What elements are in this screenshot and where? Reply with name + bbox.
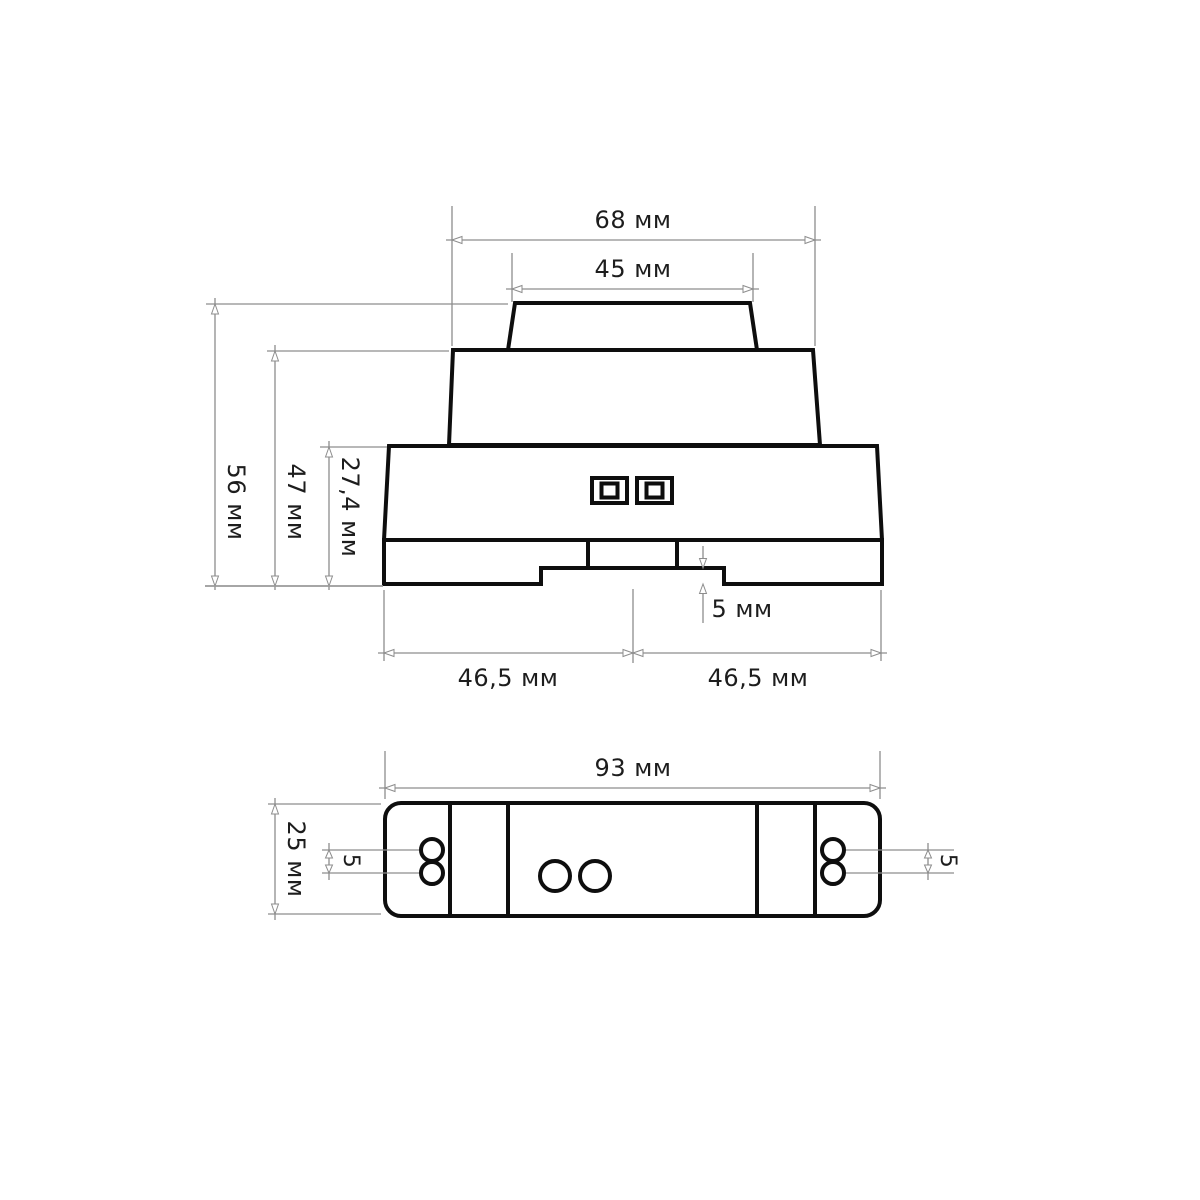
bottom-view: 93 мм 25 мм 5 5 xyxy=(268,751,960,920)
dim-upper-height-label: 47 мм xyxy=(282,464,310,541)
arrowhead-left xyxy=(512,286,522,293)
arrowhead-top xyxy=(925,850,932,858)
arrowhead-bottom xyxy=(925,865,932,873)
dim-base-halves: 46,5 мм 46,5 мм xyxy=(378,589,887,692)
arrowhead-top xyxy=(272,804,279,814)
arrowhead-left xyxy=(384,650,394,657)
terminal-hole-right-bottom xyxy=(822,862,844,884)
dim-cap-width-label: 45 мм xyxy=(595,255,672,283)
terminal-hole-right-top xyxy=(822,839,844,861)
dim-base-half-right-label: 46,5 мм xyxy=(708,664,809,692)
arrowhead-right xyxy=(870,785,880,792)
dim-overall-length-label: 93 мм xyxy=(595,754,672,782)
arrowhead-bottom xyxy=(272,576,279,586)
dim-overall-width-label: 68 мм xyxy=(595,206,672,234)
terminal-hole-left-top xyxy=(421,839,443,861)
front-cap-outline xyxy=(508,303,757,350)
bottom-outline xyxy=(385,803,880,916)
center-hole-right xyxy=(580,861,610,891)
arrowhead-bottom xyxy=(326,865,333,873)
dim-overall-depth: 25 мм xyxy=(268,798,381,920)
arrowhead-left xyxy=(452,237,462,244)
arrowhead-center-right xyxy=(633,650,643,657)
dim-rail-step-label: 5 мм xyxy=(711,595,772,623)
front-base-outline xyxy=(384,446,882,584)
front-switch-window-right xyxy=(637,478,672,503)
dim-terminal-pitch-left-label: 5 xyxy=(338,854,363,869)
arrowhead-left xyxy=(385,785,395,792)
terminal-hole-left-bottom xyxy=(421,862,443,884)
arrowhead-right xyxy=(871,650,881,657)
dim-base-half-left-label: 46,5 мм xyxy=(458,664,559,692)
front-upper-body-outline xyxy=(449,350,820,445)
arrowhead-right xyxy=(805,237,815,244)
dim-base-height-label: 27,4 мм xyxy=(336,457,364,558)
arrowhead-right xyxy=(743,286,753,293)
switch-window-inner xyxy=(602,484,618,498)
switch-window-inner xyxy=(647,484,663,498)
technical-drawing: 68 мм 45 мм 56 мм 47 мм xyxy=(0,0,1200,1200)
arrowhead-bottom xyxy=(326,576,333,586)
dim-overall-length: 93 мм xyxy=(379,751,886,799)
dim-terminal-pitch-left: 5 xyxy=(322,843,419,880)
arrowhead-bottom xyxy=(212,576,219,586)
dim-terminal-pitch-right: 5 xyxy=(846,843,960,880)
arrowhead-top xyxy=(326,850,333,858)
dim-terminal-pitch-right-label: 5 xyxy=(935,854,960,869)
dim-base-height: 27,4 мм xyxy=(320,441,387,590)
arrowhead-up xyxy=(700,584,707,594)
arrowhead-top xyxy=(326,447,333,457)
dim-overall-depth-label: 25 мм xyxy=(282,821,310,898)
front-view: 68 мм 45 мм 56 мм 47 мм xyxy=(205,206,887,692)
dim-cap-width: 45 мм xyxy=(506,253,759,302)
arrowhead-top xyxy=(212,304,219,314)
arrowhead-bottom xyxy=(272,904,279,914)
center-hole-left xyxy=(540,861,570,891)
dim-total-height-label: 56 мм xyxy=(222,464,250,541)
front-switch-window-left xyxy=(592,478,627,503)
arrowhead-top xyxy=(272,351,279,361)
